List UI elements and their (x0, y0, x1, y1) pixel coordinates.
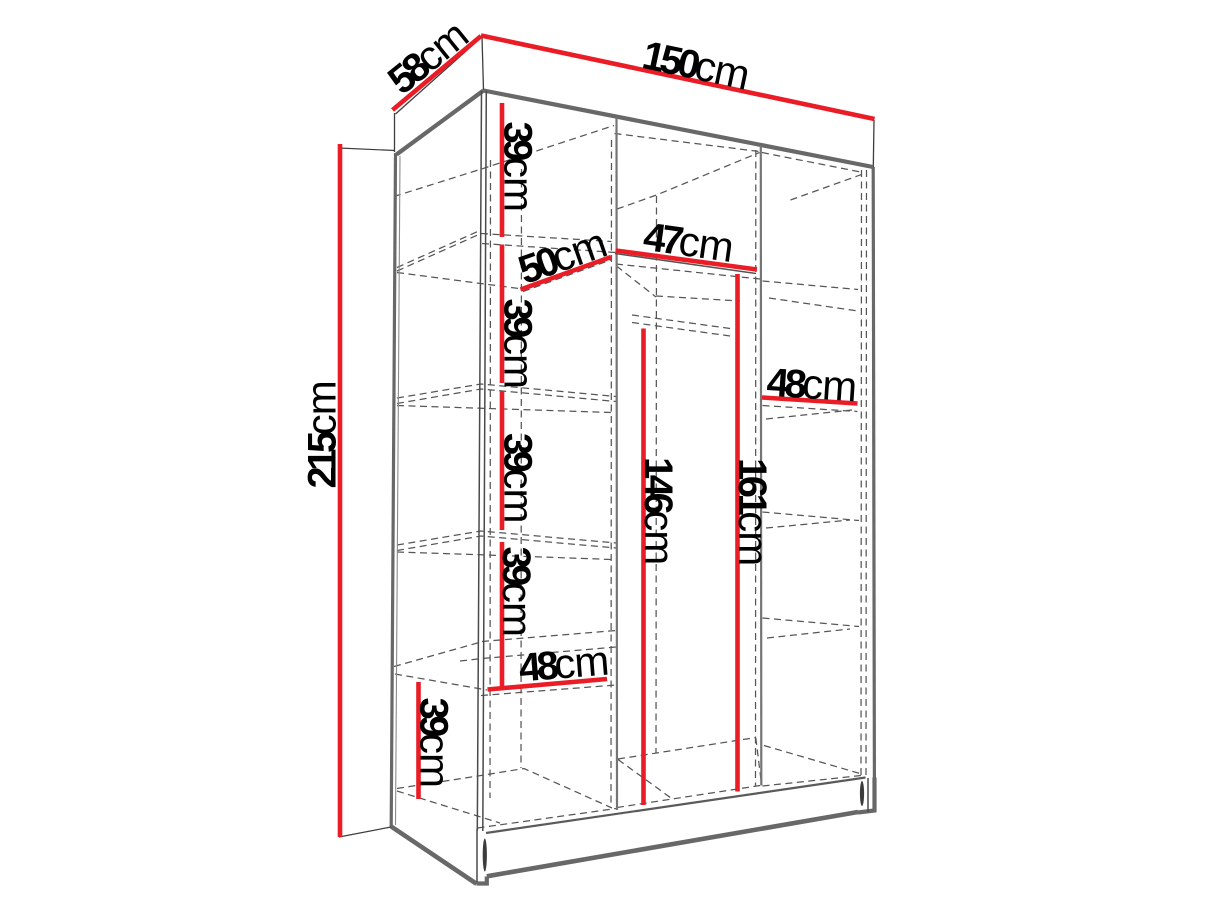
svg-text:39cm: 39cm (496, 433, 543, 523)
svg-text:150cm: 150cm (639, 30, 754, 98)
svg-text:48cm: 48cm (517, 637, 610, 691)
svg-text:39cm: 39cm (494, 547, 541, 637)
svg-text:39cm: 39cm (412, 698, 459, 788)
svg-text:58cm: 58cm (379, 12, 476, 103)
svg-text:161cm: 161cm (730, 458, 777, 565)
svg-text:50cm: 50cm (512, 219, 612, 293)
svg-text:146cm: 146cm (636, 457, 683, 564)
svg-text:48cm: 48cm (765, 358, 857, 411)
svg-text:39cm: 39cm (496, 299, 543, 389)
svg-text:215cm: 215cm (298, 381, 345, 488)
svg-text:39cm: 39cm (496, 122, 543, 212)
svg-text:47cm: 47cm (641, 212, 736, 271)
